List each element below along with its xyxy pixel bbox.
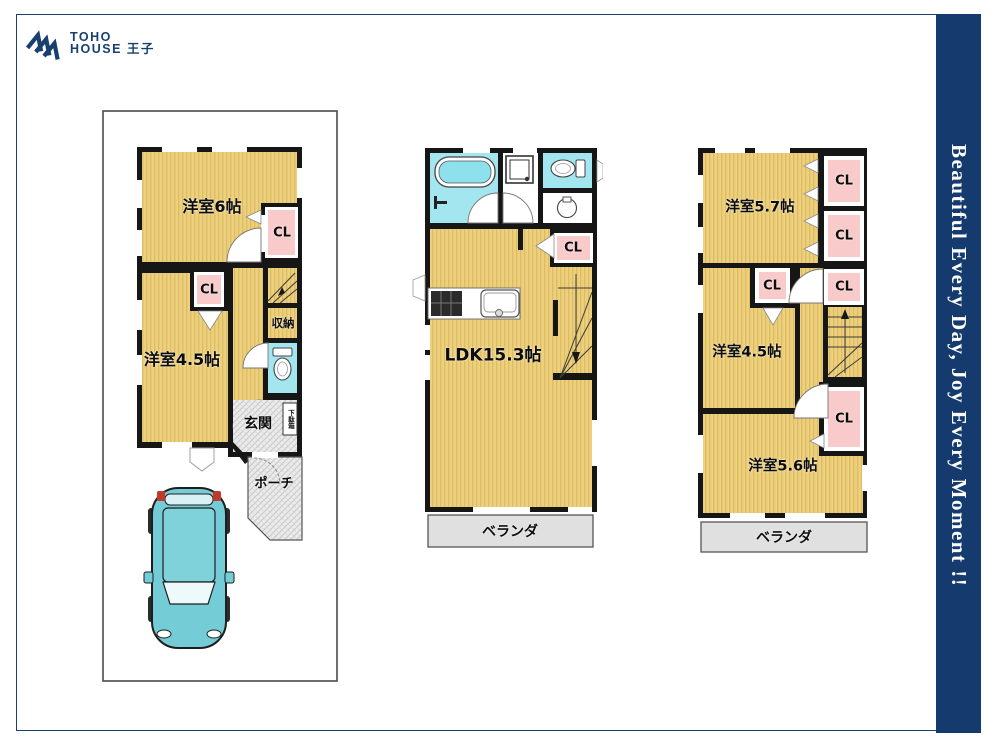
porch-label: ポーチ — [254, 473, 293, 492]
sink-icon — [481, 290, 519, 317]
ldk-floor — [430, 229, 592, 507]
closet-e-label: CL — [835, 412, 853, 427]
floor2-plan: LDK15.3帖 CL ベランダ — [408, 140, 603, 552]
storage-label: 収納 — [272, 315, 295, 331]
hall-floor — [233, 268, 263, 400]
closet2-label: CL — [200, 283, 218, 298]
floor3-plan: 洋室5.7帖 CL CL CL CL CL 洋室4.5帖 洋室5.6帖 ベランダ — [685, 135, 880, 555]
brand-logo: TOHO HOUSE 王子 — [26, 28, 155, 60]
entrance-label: 玄関 — [244, 413, 272, 433]
brand-line2: HOUSE 王子 — [70, 43, 155, 55]
kitchen-counter — [428, 288, 520, 319]
toilet-icon — [551, 160, 585, 177]
room57-label: 洋室5.7帖 — [725, 196, 794, 217]
bathtub-icon — [435, 157, 495, 187]
stove-icon — [431, 291, 462, 316]
flyer-page: TOHO HOUSE 王子 Beautiful Every Day, Joy E… — [0, 0, 1000, 750]
washing-machine-icon — [506, 156, 533, 183]
room45-label: 洋室4.5帖 — [712, 341, 781, 362]
closet-d-label: CL — [763, 279, 781, 294]
ldk-label: LDK15.3帖 — [444, 341, 541, 366]
closet1-label: CL — [273, 226, 291, 241]
wall-stub — [518, 229, 523, 250]
room56-label: 洋室5.6帖 — [748, 455, 817, 476]
car-icon — [144, 488, 234, 648]
closet-a-label: CL — [835, 174, 853, 189]
toilet-icon — [273, 348, 292, 380]
shoebox-label: 下駄箱 — [287, 409, 294, 429]
side-banner-text: Beautiful Every Day, Joy Every Moment !! — [946, 144, 971, 733]
closet-b-label: CL — [835, 229, 853, 244]
veranda-label: ベランダ — [482, 521, 538, 541]
closet-c-label: CL — [835, 280, 853, 295]
side-door — [413, 275, 425, 301]
room45-label: 洋室4.5帖 — [144, 346, 220, 370]
closet-label: CL — [564, 241, 582, 256]
side-banner: Beautiful Every Day, Joy Every Moment !! — [936, 14, 981, 733]
toilet-door — [597, 160, 603, 182]
chevrons-icon — [26, 28, 64, 60]
veranda-label: ベランダ — [756, 527, 812, 547]
floor1-plan: 洋室6帖 CL CL 洋室4.5帖 収納 玄関 下駄箱 ポーチ — [102, 110, 338, 682]
entrance-door-gap — [252, 452, 278, 458]
room6-label: 洋室6帖 — [182, 193, 241, 217]
